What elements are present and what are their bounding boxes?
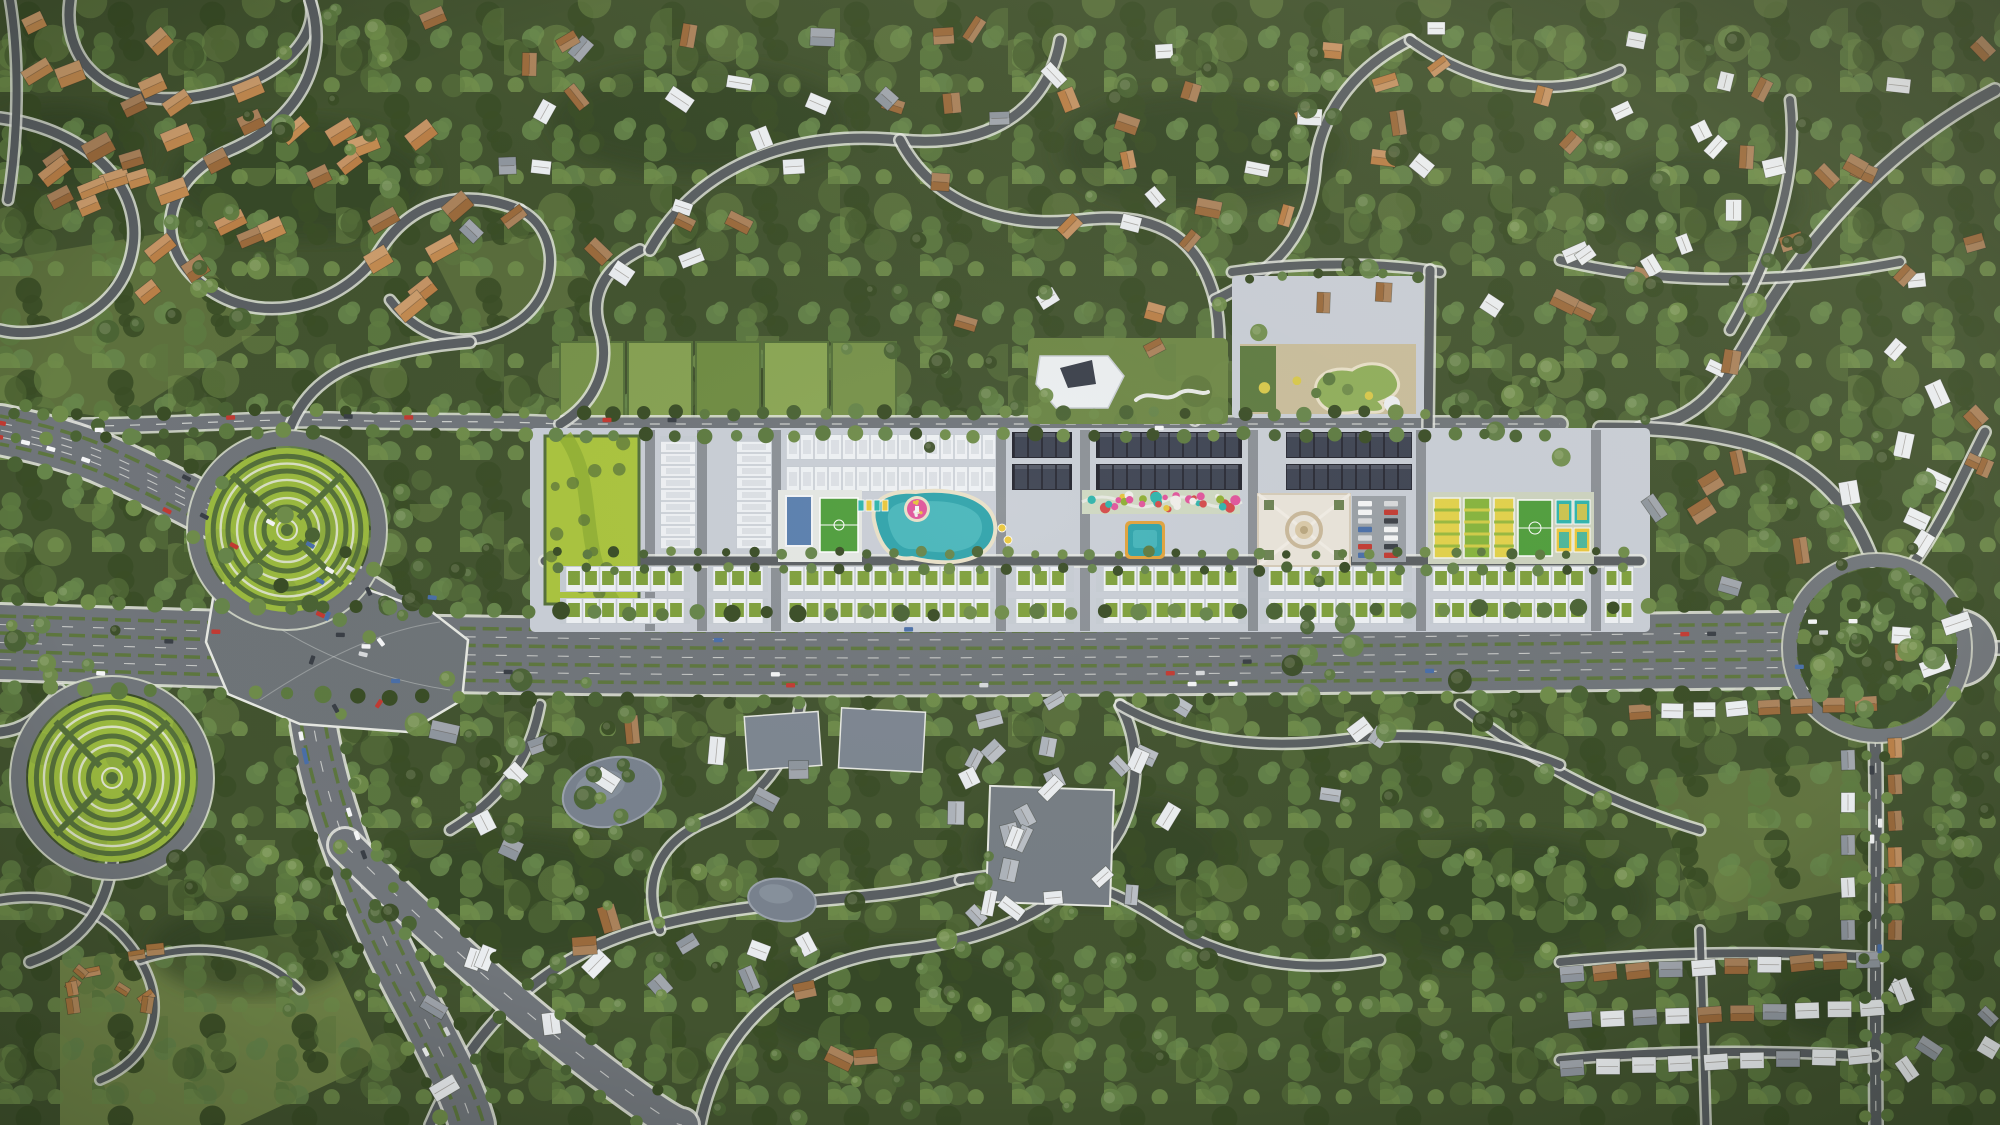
masterplan-scene: Aerial bird's-eye 3D render of a residen… [0,0,2000,1125]
aerial-masterplan-render: Aerial bird's-eye 3D render of a residen… [0,0,2000,1125]
vignette-overlay [0,0,2000,1125]
